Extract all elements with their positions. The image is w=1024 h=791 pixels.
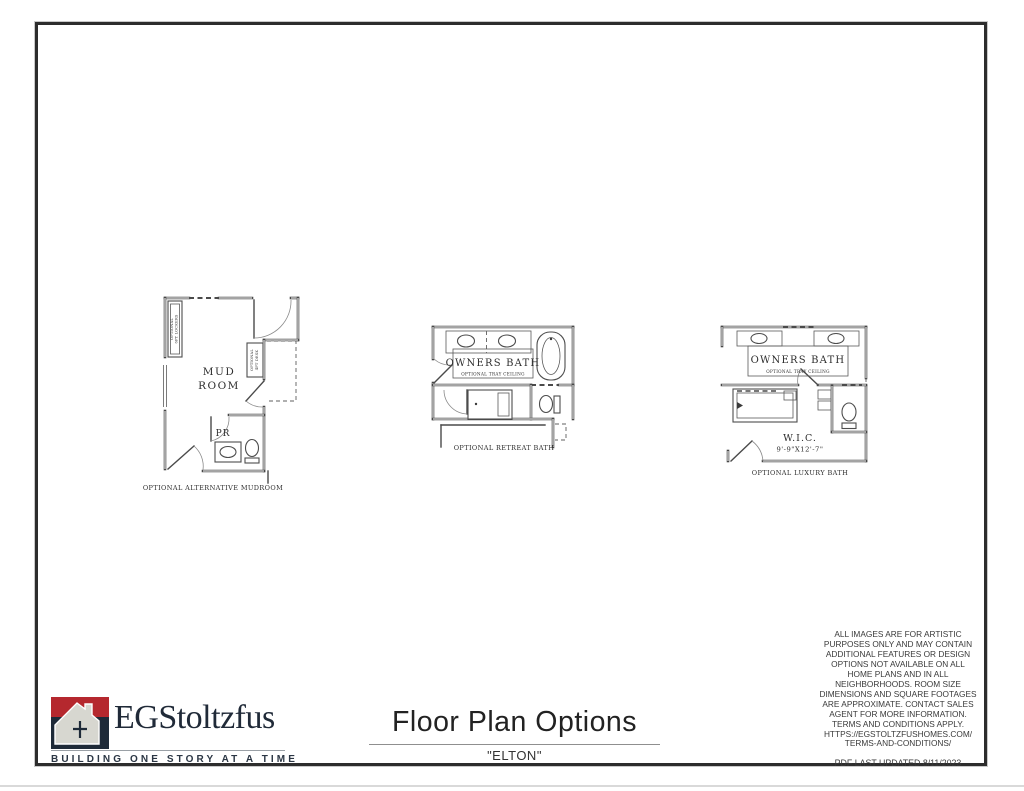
retreat-caption: OPTIONAL RETREAT BATH [424,444,584,452]
house-logo-icon [51,697,109,749]
desk-label-line2: 4FT DESK [255,350,259,371]
mudroom-label-line2: ROOM [198,380,240,392]
powder-room-label: PR [216,429,231,439]
lockers-label-line2: 6FT LOCKERS [175,314,179,343]
luxury-caption: OPTIONAL LUXURY BATH [720,469,880,477]
retreat-room-label: OWNERS BATH [446,358,541,369]
title-block: Floor Plan Options "ELTON" [369,706,660,763]
lockers-box: OPTIONAL 6FT LOCKERS [168,301,182,357]
mudroom-caption: OPTIONAL ALTERNATIVE MUDROOM [133,484,293,492]
sink-fixture [751,334,767,344]
retreat-vanity [446,331,531,353]
plan-name-subtitle: "ELTON" [369,748,660,763]
linen-shelves [818,390,831,410]
page-border: OPTIONAL 6FT LOCKERS OPTIONAL 4FT DESK M… [35,22,987,766]
wic-dimensions: 9'-9"X12'-7" [776,446,823,454]
floor-plan-mudroom: OPTIONAL 6FT LOCKERS OPTIONAL 4FT DESK M… [155,295,305,485]
sink-fixture [458,335,475,347]
floor-plan-retreat-bath: OWNERS BATH OPTIONAL TRAY CEILING [431,320,583,452]
desk-box: OPTIONAL 4FT DESK [247,343,263,377]
retreat-tray-label: OPTIONAL TRAY CEILING [461,372,525,377]
bottom-divider [0,785,1024,787]
sink-fixture [220,447,236,458]
tub-fixture [537,332,565,380]
luxury-room-label: OWNERS BATH [751,355,846,366]
lockers-label-line1: OPTIONAL [170,318,174,340]
wic-label: W.I.C. [783,433,817,444]
sink-fixture [828,334,844,344]
desk-label-line1: OPTIONAL [250,349,254,371]
powder-room-fixtures [215,440,259,464]
toilet-fixture [842,403,856,429]
page-title: Floor Plan Options [369,706,660,745]
dashed-connection-outline [267,341,296,401]
disclaimer-block: ALL IMAGES ARE FOR ARTISTIC PURPOSES ONL… [810,630,986,769]
toilet-fixture [246,440,259,457]
sink-fixture [499,335,516,347]
logo-divider [51,750,285,751]
shower-fixture [733,389,797,422]
shower-fixture [468,390,512,419]
disclaimer-text: ALL IMAGES ARE FOR ARTISTIC PURPOSES ONL… [810,630,986,749]
document-canvas: OPTIONAL 6FT LOCKERS OPTIONAL 4FT DESK M… [0,0,1024,791]
brand-name: EGStoltzfus [114,699,275,737]
floor-plan-luxury-bath: OWNERS BATH OPTIONAL TRAY CEILING W.I.C.… [720,320,882,468]
pdf-updated-text: PDF LAST UPDATED 8/11/2023 [810,758,986,769]
brand-tagline: BUILDING ONE STORY AT A TIME [51,754,285,765]
toilet-fixture [540,396,561,414]
luxury-tray-label: OPTIONAL TRAY CEILING [766,369,830,374]
company-logo: EGStoltzfus BUILDING ONE STORY AT A TIME [49,697,291,765]
luxury-vanities [737,331,859,346]
mudroom-label-line1: MUD [203,366,236,378]
